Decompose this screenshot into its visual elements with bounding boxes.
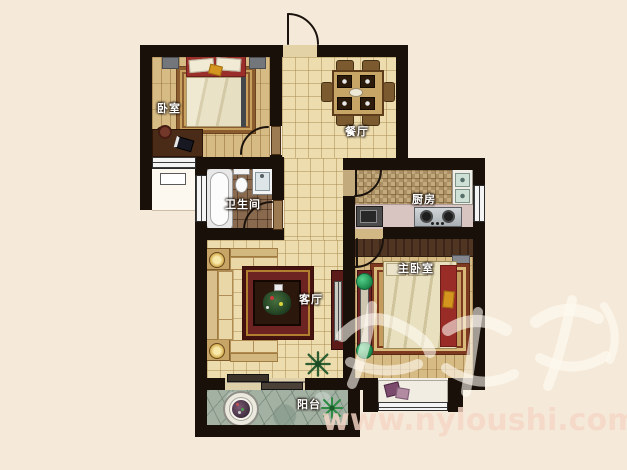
dining-chair — [383, 82, 395, 102]
flower-dot — [236, 403, 239, 406]
wall-top-right — [317, 45, 408, 57]
wall-kitchen-top — [343, 158, 485, 170]
wall-balcony-right — [348, 390, 360, 437]
room-label-living: 客厅 — [299, 291, 323, 307]
bedroom-nightstand-left — [162, 57, 179, 69]
sofa-back-left — [206, 270, 218, 340]
wall-west-lower — [195, 222, 207, 437]
wall-top-left — [140, 45, 283, 57]
living-plant-icon — [304, 350, 332, 378]
balcony-plant-icon — [320, 396, 344, 420]
wall-bay-stub-right — [448, 383, 463, 412]
room-label-balcony: 阳台 — [297, 396, 321, 412]
sofa-seats-bottom — [230, 340, 278, 353]
dining-placemat — [360, 75, 375, 88]
entry-door-arc — [288, 14, 318, 44]
wall-bay-stub-left — [363, 383, 378, 412]
kitchen-sink-basin-top — [455, 173, 470, 187]
wall-living-bottom-left — [195, 378, 225, 390]
flower-dot — [266, 306, 269, 309]
wall-living-master-divider — [343, 239, 355, 390]
wall-outer-left — [140, 45, 152, 210]
wall-outer-right-upper — [473, 158, 485, 185]
sliding-door-panel-right — [261, 382, 303, 390]
bedroom-bed-duvet — [186, 77, 246, 127]
toilet-bowl — [235, 177, 248, 193]
sliding-door-panel-left — [227, 374, 269, 382]
room-label-kitchen: 厨房 — [412, 191, 436, 207]
dining-placemat — [337, 97, 352, 110]
sofa-back-bottom — [230, 353, 278, 362]
room-label-bedroom: 卧室 — [157, 100, 181, 116]
bedroom-nightstand-right — [249, 57, 266, 69]
wall-dining-right — [396, 45, 408, 170]
master-bed-gold-cushion — [442, 290, 455, 308]
hallway-floor — [284, 158, 343, 240]
coffee-table-flowers — [263, 291, 291, 315]
bay-window-glazing — [378, 402, 448, 411]
bedroom-door-leaf — [271, 126, 281, 155]
dining-placemat — [337, 75, 352, 88]
dining-dish — [349, 88, 363, 97]
flower-dot — [279, 302, 283, 306]
wall-kitchen-bottom-left — [343, 227, 355, 239]
wall-outer-right-lower — [473, 222, 485, 390]
room-label-master-bedroom: 主卧室 — [398, 260, 434, 276]
wall-bathroom-right-upper — [272, 169, 284, 200]
flower-dot — [238, 411, 241, 414]
wall-bathroom-bottom — [195, 228, 284, 240]
bathroom-door-leaf — [273, 200, 283, 230]
room-label-bathroom: 卫生间 — [225, 196, 261, 212]
stove-burner-right — [442, 210, 455, 223]
room-label-dining: 餐厅 — [345, 123, 369, 139]
flower-dot — [270, 296, 274, 300]
stove-knob — [436, 222, 439, 225]
living-lamp-bottom — [209, 343, 225, 359]
sofa-seats-left — [218, 270, 233, 340]
sink-faucet — [260, 174, 264, 178]
utility-platform-vent — [160, 173, 186, 185]
wall-kitchen-bottom-right — [383, 227, 485, 239]
kitchen-window — [473, 185, 485, 222]
stove-knob — [431, 222, 434, 225]
stove-knob — [441, 222, 444, 225]
bedroom-teapot — [158, 125, 172, 139]
wall-bedroom-right-lower — [270, 155, 282, 169]
floor-plan: 卧室 餐厅 卫生间 厨房 客厅 主卧室 阳台 www.nyloushi.com — [0, 0, 627, 470]
wall-balcony-bottom — [195, 425, 360, 437]
kitchen-door-threshold — [343, 170, 355, 196]
living-lamp-top — [209, 252, 225, 268]
kitchen-sink-basin-bottom — [455, 189, 470, 203]
wall-bedroom-right-upper — [270, 45, 282, 126]
flower-dot — [241, 408, 244, 411]
dining-placemat — [360, 97, 375, 110]
bedroom-bed-fold — [241, 77, 246, 127]
living-tv-screen — [334, 281, 342, 341]
bedroom-window — [152, 157, 196, 169]
bathroom-window — [195, 175, 207, 222]
sofa-back-top — [230, 248, 278, 257]
microwave-screen — [360, 210, 377, 223]
stove-burner-left — [420, 210, 433, 223]
bay-pillow-light — [395, 387, 410, 400]
master-plant-top — [356, 273, 373, 290]
entry-threshold — [283, 45, 317, 57]
coffee-table-card — [274, 284, 283, 291]
master-plant-bottom — [356, 342, 373, 359]
